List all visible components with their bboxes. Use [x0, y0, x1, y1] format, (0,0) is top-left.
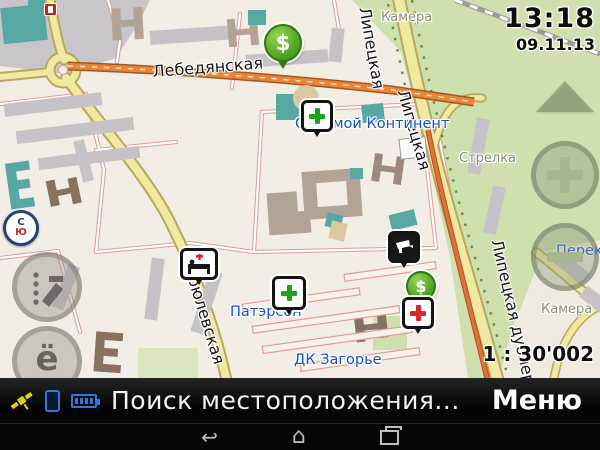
back-button[interactable]: ↩	[201, 427, 218, 447]
annotation-strelka: Стрелка	[459, 152, 516, 166]
time-display: 13:18	[504, 3, 595, 34]
annotation-camera-bottom: Камера	[541, 303, 592, 317]
small-poi-icon[interactable]	[44, 3, 57, 16]
satellite-icon	[10, 390, 34, 412]
minus-icon	[547, 239, 583, 275]
annotation-camera-top: Камера	[381, 11, 432, 25]
poi-pin-pharmacy-1[interactable]	[301, 100, 333, 132]
poi-pin-cctv-camera[interactable]	[388, 231, 420, 263]
map-canvas[interactable]: Лебедянская Липецкая Липецкая Бирюлевска…	[0, 0, 600, 378]
compass-button[interactable]: С Ю	[3, 210, 39, 246]
navigator-screen: Лебедянская Липецкая Липецкая Бирюлевска…	[0, 0, 600, 450]
android-nav-bar: ↩ ⌂	[0, 423, 600, 450]
pan-up-button[interactable]	[536, 81, 594, 112]
clock-block: 13:18 09.11.13	[504, 3, 595, 54]
status-icons	[10, 390, 97, 412]
device-icon	[45, 390, 60, 412]
plus-icon	[547, 157, 583, 193]
compass-south-label: Ю	[15, 228, 27, 238]
hospital-bed-icon	[186, 254, 212, 274]
gps-status-text: Поиск местоположения...	[111, 386, 492, 415]
zoom-out-button[interactable]	[531, 223, 599, 291]
poi-pin-hospital[interactable]	[180, 248, 218, 280]
poi-label-dk-zagorye: ДК Загорье	[294, 353, 382, 368]
map-scale: 1 : 30'002	[482, 342, 594, 366]
menu-button[interactable]: Меню	[492, 385, 582, 416]
zoom-in-button[interactable]	[531, 141, 599, 209]
dollar-icon: $	[415, 277, 426, 296]
recents-button[interactable]	[380, 430, 399, 445]
dollar-icon: $	[276, 31, 291, 55]
status-bar: Поиск местоположения... Меню	[0, 378, 600, 423]
cctv-camera-icon	[394, 238, 414, 256]
poi-pin-currency-1[interactable]: $	[264, 24, 302, 62]
poi-pin-pharmacy-2[interactable]	[272, 276, 306, 310]
date-display: 09.11.13	[504, 35, 595, 54]
red-cross-icon	[409, 304, 427, 322]
route-record-icon	[27, 267, 67, 307]
home-button[interactable]: ⌂	[292, 426, 306, 448]
poi-pin-medical[interactable]	[402, 297, 434, 329]
events-icon: ё	[35, 342, 58, 376]
route-record-button[interactable]	[12, 252, 82, 322]
green-cross-icon	[280, 284, 298, 302]
battery-icon	[71, 394, 97, 408]
green-cross-icon	[308, 107, 326, 125]
